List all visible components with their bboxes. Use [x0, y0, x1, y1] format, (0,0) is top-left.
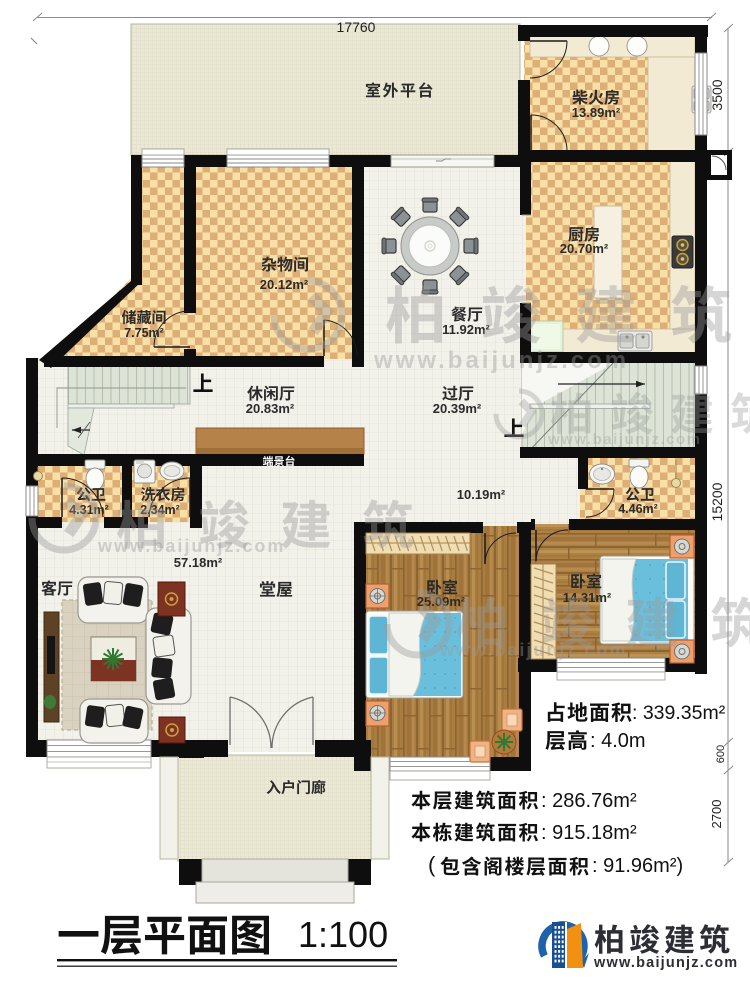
- svg-text:3500: 3500: [709, 79, 725, 110]
- svg-text:www.baijunjz.com: www.baijunjz.com: [593, 955, 738, 971]
- svg-text:www.baijunjz.com: www.baijunjz.com: [547, 431, 701, 448]
- svg-text:7.75m²: 7.75m²: [124, 326, 164, 340]
- svg-text:10.19m²: 10.19m²: [457, 487, 506, 502]
- svg-text:: 339.35m²: : 339.35m²: [632, 702, 726, 724]
- svg-text:20.12m²: 20.12m²: [260, 277, 309, 292]
- svg-text:20.83m²: 20.83m²: [246, 401, 295, 416]
- svg-text:2700: 2700: [709, 800, 724, 829]
- svg-text:www.baijunjz.com: www.baijunjz.com: [97, 536, 285, 556]
- svg-text:15200: 15200: [709, 482, 725, 521]
- svg-text:: 91.96m²): : 91.96m²): [592, 855, 683, 877]
- svg-text:4.46m²: 4.46m²: [618, 502, 658, 516]
- svg-text:13.89m²: 13.89m²: [572, 105, 621, 120]
- svg-text:57.18m²: 57.18m²: [174, 555, 223, 570]
- svg-text:17760: 17760: [337, 19, 376, 35]
- svg-text:www.baijunjz.com: www.baijunjz.com: [439, 640, 627, 660]
- svg-text:www.baijunjz.com: www.baijunjz.com: [373, 347, 629, 374]
- svg-text:11.92m²: 11.92m²: [442, 322, 490, 337]
- svg-text:20.70m²: 20.70m²: [560, 241, 609, 256]
- svg-text:1:100: 1:100: [298, 914, 388, 955]
- svg-text:: 286.76m²: : 286.76m²: [541, 790, 637, 812]
- svg-text:(: (: [428, 852, 436, 877]
- svg-text:: 915.18m²: : 915.18m²: [541, 822, 637, 844]
- svg-text:: 4.0m: : 4.0m: [590, 730, 646, 752]
- svg-text:20.39m²: 20.39m²: [433, 401, 482, 416]
- svg-text:600: 600: [715, 745, 727, 763]
